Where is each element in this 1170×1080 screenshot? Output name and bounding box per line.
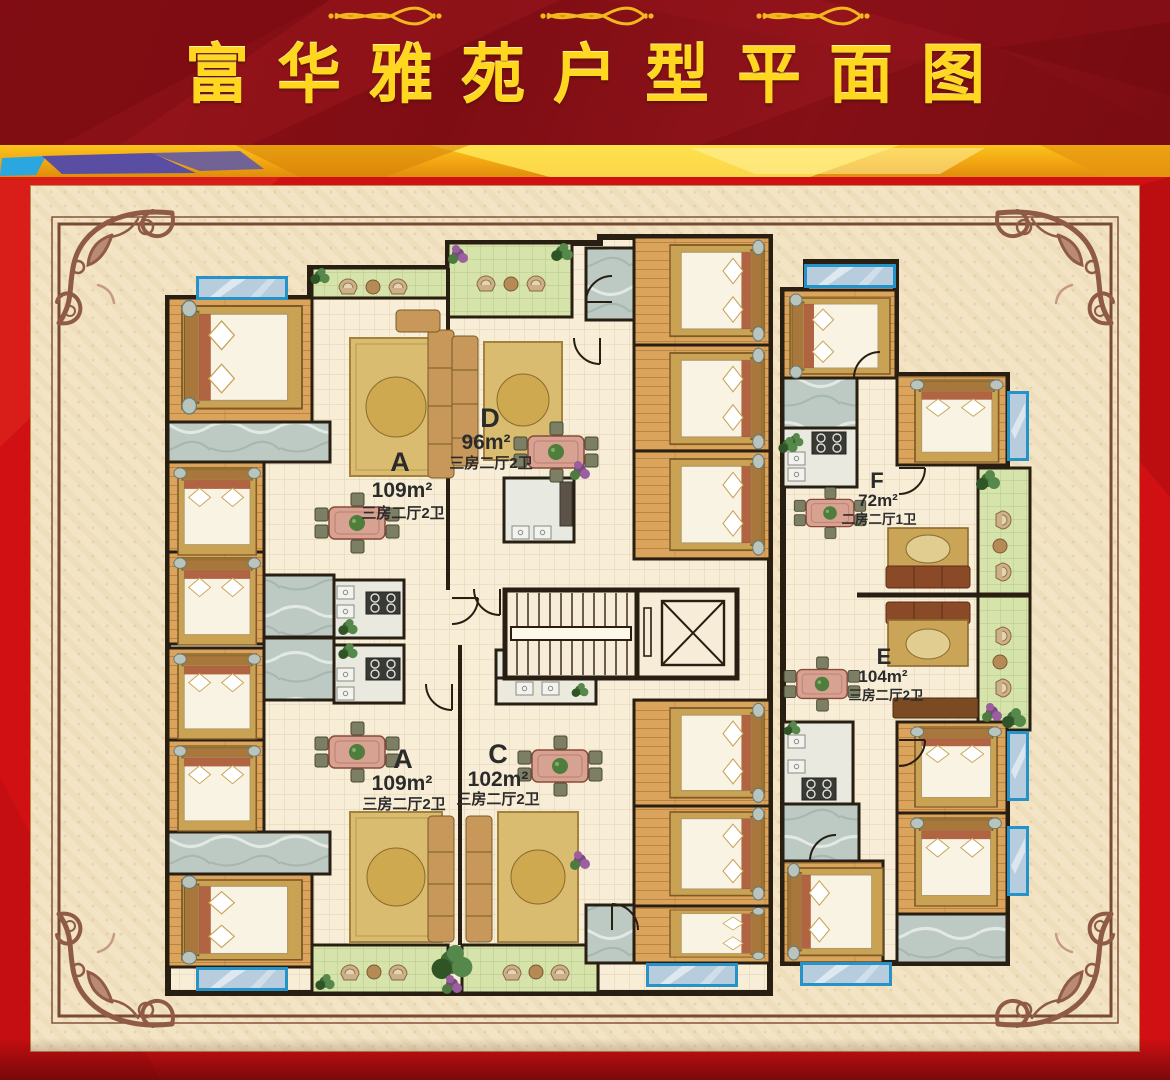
bathroom-top-left [168, 422, 330, 462]
bed-F2 [911, 380, 1003, 462]
red-board: A 109m² 三房二厅2卫 D 96m² 三房二厅2卫 A 109m² 三房二… [0, 177, 1170, 1080]
svg-text:96m²: 96m² [461, 431, 510, 454]
living-room-F [886, 528, 970, 588]
header-banner: 富华雅苑户型平面图 [0, 0, 1170, 145]
svg-text:A: A [390, 447, 410, 477]
bathroom-mid-lower [264, 638, 334, 700]
window-F2-side [1007, 391, 1029, 461]
window-master-bottom [196, 967, 288, 991]
svg-text:三房二厅2卫: 三房二厅2卫 [848, 687, 924, 703]
window-E1-balcony [800, 962, 892, 986]
bathroom-F [783, 378, 857, 428]
living-room-A-bottom [350, 812, 454, 942]
accent-stripe [0, 145, 1170, 177]
cream-panel: A 109m² 三房二厅2卫 D 96m² 三房二厅2卫 A 109m² 三房二… [30, 185, 1140, 1052]
svg-text:109m²: 109m² [372, 479, 433, 502]
bed-right-1 [670, 240, 764, 341]
svg-text:C: C [488, 739, 508, 769]
living-room-C [466, 812, 578, 942]
window-E2-side [1007, 731, 1029, 801]
bed-right-3 [670, 454, 764, 555]
poster-title: 富华雅苑户型平面图 [0, 24, 1170, 116]
bed-right-6 [670, 908, 764, 960]
bathroom-E [783, 804, 859, 861]
gold-divider-ornament [0, 0, 1170, 32]
bed-E3 [911, 818, 1002, 906]
bed-master-top [182, 301, 302, 414]
bed-right-5 [670, 808, 764, 900]
window-F-balcony [804, 264, 896, 288]
bed-left-2 [174, 468, 261, 555]
svg-text:三房二厅2卫: 三房二厅2卫 [361, 504, 444, 522]
bathroom-E2 [897, 914, 1007, 963]
svg-text:109m²: 109m² [372, 772, 433, 795]
window-E3-side [1007, 826, 1029, 896]
bed-F1 [790, 294, 890, 378]
balcony-unitA-top [312, 268, 448, 298]
bed-left-4 [174, 654, 261, 739]
svg-text:三房二厅2卫: 三房二厅2卫 [362, 795, 445, 813]
elevator-door [644, 608, 651, 656]
svg-text:二房二厅1卫: 二房二厅1卫 [841, 511, 917, 527]
svg-text:E: E [877, 644, 892, 669]
svg-text:F: F [870, 468, 883, 493]
bed-E1 [788, 863, 883, 960]
bed-right-4 [670, 703, 764, 802]
svg-text:104m²: 104m² [858, 667, 907, 686]
svg-text:72m²: 72m² [858, 491, 898, 510]
window-bottom-right [646, 963, 738, 987]
bed-left-5 [174, 746, 261, 831]
bathroom-bottom-left [168, 832, 330, 874]
poster: 富华雅苑户型平面图 [0, 0, 1170, 1080]
svg-text:102m²: 102m² [468, 768, 529, 791]
bed-master-bottom [182, 876, 302, 964]
svg-text:三房二厅2卫: 三房二厅2卫 [456, 790, 539, 808]
floor-plan: A 109m² 三房二厅2卫 D 96m² 三房二厅2卫 A 109m² 三房二… [150, 225, 1060, 1025]
stair-handrail [511, 627, 631, 640]
bed-right-2 [670, 348, 764, 449]
bed-left-3 [174, 558, 261, 645]
bathroom-mid-upper [264, 575, 334, 637]
svg-text:三房二厅2卫: 三房二厅2卫 [449, 454, 532, 472]
svg-text:D: D [480, 403, 500, 433]
stair-elevator-core [505, 590, 737, 678]
bathroom-bottom-right [586, 905, 634, 963]
svg-text:A: A [393, 744, 413, 774]
window-master-top [196, 276, 288, 300]
